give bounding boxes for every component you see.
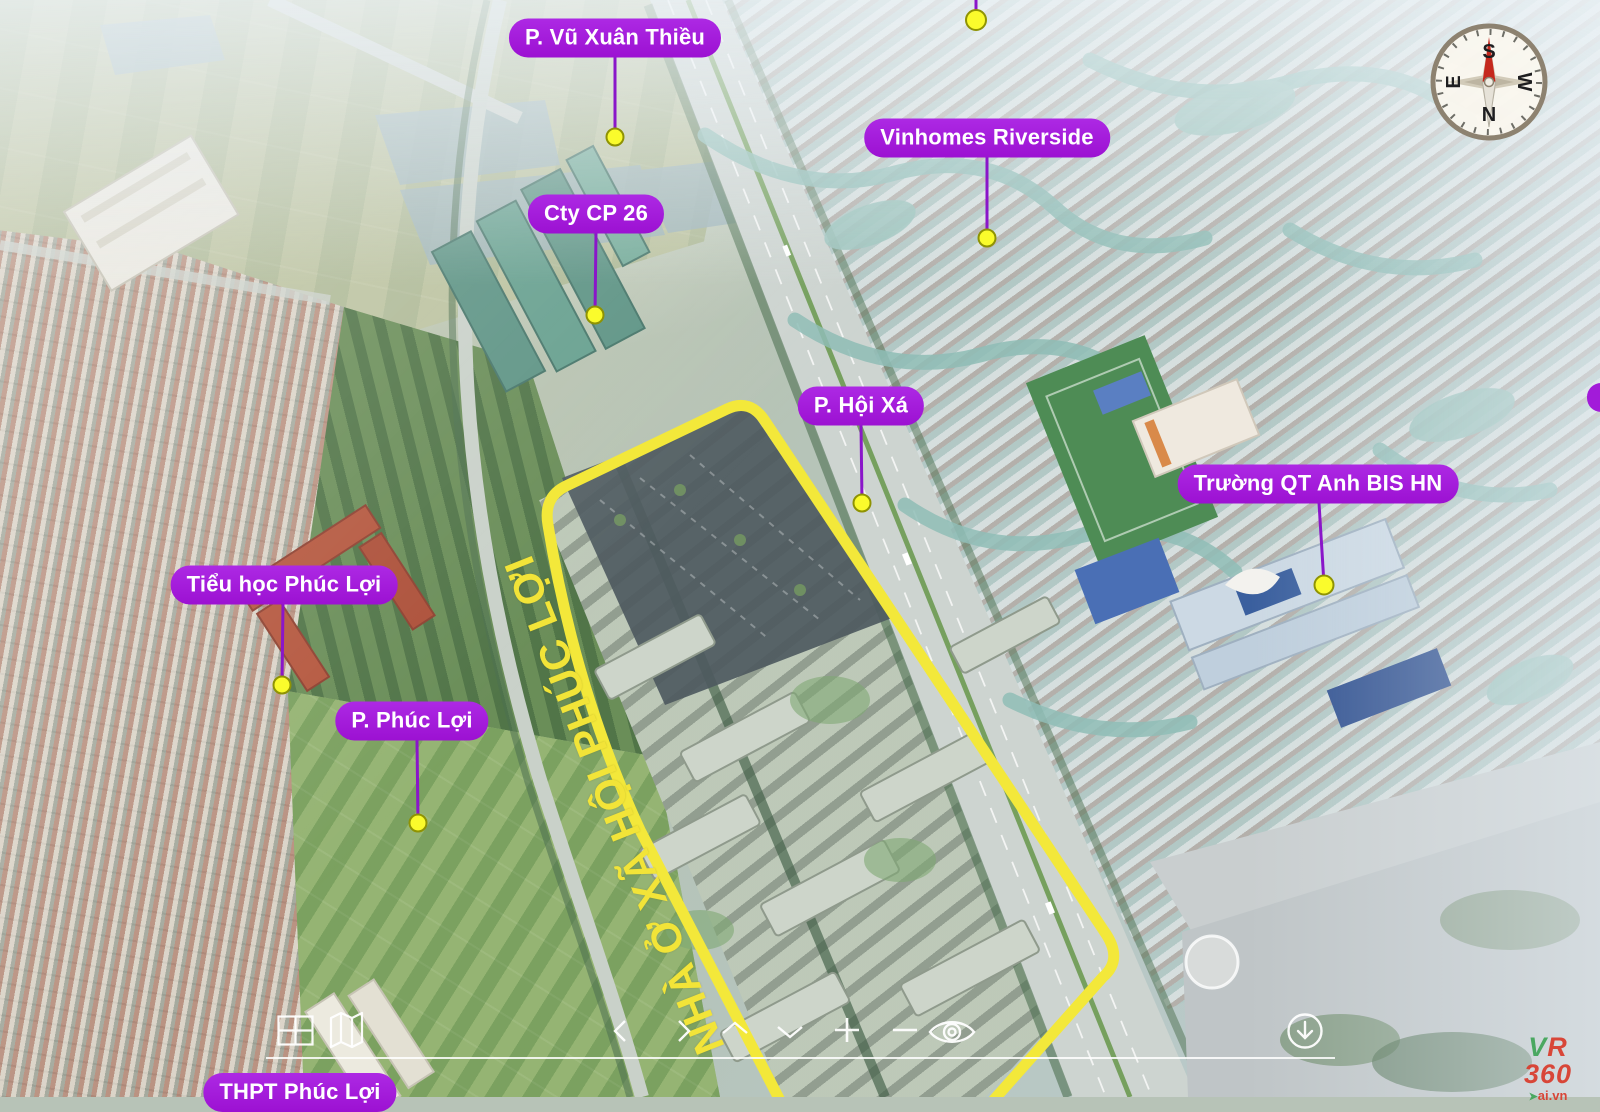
logo-letter-v: V [1528, 1032, 1547, 1062]
aerial-photo-background[interactable] [0, 0, 1600, 1097]
site-parking-lot [562, 406, 892, 705]
vr360-logo: VR 360 ➤ai.vn [1500, 1034, 1596, 1103]
fields-region [0, 0, 1600, 1097]
toolbar-divider [266, 1057, 1335, 1059]
marker-pill-tieu-hoc-phuc-loi[interactable]: Tiểu học Phúc Lợi [171, 566, 398, 605]
atmospheric-haze [0, 0, 1600, 1097]
marker-pill-partial[interactable] [1587, 383, 1600, 412]
west-road [465, 0, 642, 1097]
west-road-trees [452, 0, 630, 1097]
compass-letter-south: S [1482, 41, 1495, 63]
access-road [270, 0, 520, 118]
main-avenue [648, 0, 1205, 1097]
sports-field [1026, 335, 1259, 565]
pan-left-icon[interactable] [612, 1019, 628, 1048]
site-greens [666, 676, 936, 950]
marker-pill-vinhomes-riverside[interactable]: Vinhomes Riverside [864, 119, 1110, 158]
marker-pill-vu-xuan-thieu[interactable]: P. Vũ Xuân Thiều [509, 19, 721, 58]
compass-letter-west: W [1513, 73, 1535, 92]
marker-pill-thpt-phuc-loi[interactable]: THPT Phúc Lợi [203, 1073, 396, 1112]
green-roof-factory [424, 146, 680, 399]
marker-pill-phuc-loi[interactable]: P. Phúc Lợi [335, 702, 488, 741]
site-boundary [547, 405, 1114, 1097]
marker-pill-truong-bis-hn[interactable]: Trường QT Anh BIS HN [1178, 465, 1459, 504]
villa-district-region [0, 0, 1600, 1097]
virtual-tour-viewer: { "viewer": { "site_area_label": "NHÀ Ở … [0, 0, 1600, 1097]
zoom-out-icon[interactable] [891, 1016, 919, 1049]
marker-pill-hoi-xa[interactable]: P. Hội Xá [798, 387, 924, 426]
factory-building [64, 136, 238, 291]
zoom-in-icon[interactable] [833, 1016, 861, 1049]
logo-domain: ai.vn [1538, 1088, 1568, 1103]
logo-arrow-icon: ➤ [1529, 1091, 1538, 1103]
development-site-region [0, 0, 1600, 1097]
dense-urban-region [0, 0, 1600, 1097]
international-school-buildings [1075, 519, 1452, 728]
vehicles [782, 245, 1055, 915]
annotation-overlay [0, 0, 1600, 1097]
compass: S N E W [1429, 22, 1549, 142]
tree-line [618, 460, 885, 1097]
floorplan-grid-icon[interactable] [277, 1015, 314, 1051]
lakes [818, 70, 1580, 716]
site-area-label: NHÀ Ở XÃ HỘI PHÚC LỢI [497, 550, 733, 1060]
download-arrow-icon[interactable] [1286, 1012, 1324, 1055]
pan-up-icon[interactable] [721, 1020, 749, 1041]
terrain-details [0, 0, 1600, 1097]
pan-down-icon[interactable] [776, 1024, 804, 1045]
farm-plots-region [0, 0, 1600, 1097]
hide-interface-eye-icon[interactable] [926, 1012, 978, 1057]
compass-letter-north: N [1482, 104, 1496, 126]
panorama-map-icon[interactable] [329, 1011, 364, 1055]
logo-number: 360 [1524, 1059, 1572, 1089]
logo-letter-r: R [1547, 1032, 1568, 1062]
orchard-region [0, 0, 1600, 1097]
side-street [0, 245, 330, 300]
compass-letter-east: E [1443, 75, 1465, 88]
pan-right-icon[interactable] [676, 1019, 692, 1048]
marker-pill-cty-cp-26[interactable]: Cty CP 26 [528, 195, 664, 234]
